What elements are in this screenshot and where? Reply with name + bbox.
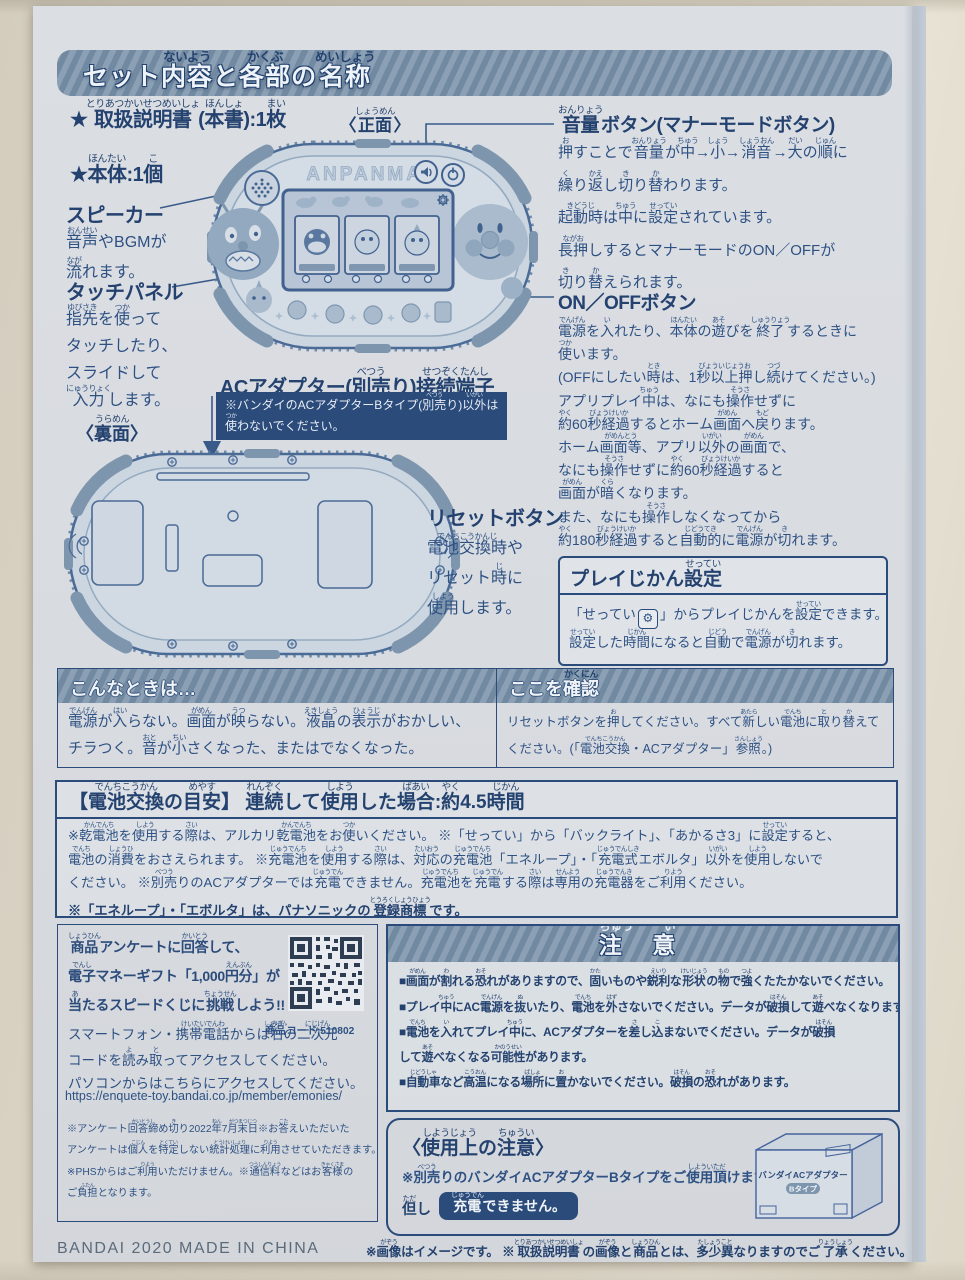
reset-button-desc: 電池交換時でんちこうかんじやリセット時じに使用しようします。 xyxy=(427,532,523,624)
survey-line5: コードを読よみ取とってアクセスしてください。 xyxy=(68,1047,258,1073)
survey-url: https://enquete-toy.bandai.co.jp/member/… xyxy=(65,1089,342,1103)
qr-code xyxy=(288,935,364,1011)
touch-screen xyxy=(283,190,453,290)
survey-note4: ご負担ふたんとなります。 xyxy=(67,1183,381,1204)
survey-note2: アンケートは個人こじんを特定とくていしない統計処理とうけいしょりに利用りようさせ… xyxy=(67,1140,381,1161)
power-button-icon xyxy=(442,164,464,186)
battery-cover-right xyxy=(318,501,372,588)
survey-line4: スマートフォン・携帯電話けいたいでんわからは右みぎの二次元にじげん xyxy=(68,1021,258,1047)
caution-item-3: ■電池でんちを入いれてプレイ中ちゅうに、ACアダプターを差さし込こまないでくださ… xyxy=(399,1020,887,1069)
usage-note-box: 〈使用上しようじょうの注意ちゅうい〉 ※別売べつうりのバンダイACアダプターBタ… xyxy=(386,1118,900,1236)
battery-guideline-title: 【電池交換でんちこうかんの目安めやす】 連続れんぞくして使用しようした場合ばあい… xyxy=(57,782,896,819)
trademark-note: ※「エネループ」・「エボルタ」は、パナソニックの登録商標とうろくしょうひょうです… xyxy=(57,897,896,926)
no-charge-badge: 充電じゅうでんできません。 xyxy=(439,1192,578,1220)
footer-disclaimer: ※画像がぞうはイメージです。 ※取扱説明書とりあつかいせつめいしょの画像がぞうと… xyxy=(366,1239,912,1260)
check-body: リセットボタンを押おしてください。すべて新あたらしい電池でんちに取とり替かえてく… xyxy=(497,703,893,767)
troubleshooting-table: こんなときは… 電源でんげんが入はいらない。画面がめんが映うつらない。液晶えきし… xyxy=(57,668,894,768)
power-button-label: ON／OFFボタン xyxy=(558,288,696,315)
adapter-box-name: バンダイACアダプター xyxy=(758,1170,847,1180)
footer-manufacturer: BANDAI 2020 MADE IN CHINA xyxy=(57,1240,319,1258)
device-back-illustration xyxy=(62,446,462,662)
adapter-box-type: Bタイプ xyxy=(789,1184,817,1194)
ac-adapter-box-illustration: バンダイACアダプター Bタイプ xyxy=(740,1126,892,1230)
caution-item-1: ■画面がめんが割われる恐おそれがありますので、固かたいものや鋭利えいりな形状けい… xyxy=(399,969,887,994)
battery-guideline-body: ※乾電池かんでんちを使用しようする際さいは、アルカリ乾電池かんでんちをお使つかい… xyxy=(57,819,896,897)
survey-line1: 商品しょうひんアンケートに回答かいとうして、 xyxy=(68,933,285,962)
speaker-label: スピーカー xyxy=(66,199,164,228)
caution-title: 注ちゅう 意い xyxy=(599,924,687,960)
playtime-setting-box: プレイじかん設定せってい 「せってい⚙」からプレイじかんを設定せっていできます。… xyxy=(558,556,888,666)
survey-note1: ※アンケート回答締かいとうしめ切きり2022年ねん7月末日がつまつじつ※お答こた… xyxy=(67,1119,381,1140)
photo-of-manual: セット内容ないようと各部かくぶの名称めいしょう ★取扱説明書とりあつかいせつめい… xyxy=(0,0,965,1280)
survey-notes: ※アンケート回答締かいとうしめ切きり2022年ねん7月末日がつまつじつ※お答こた… xyxy=(67,1119,381,1204)
trouble-header: こんなときは… xyxy=(58,669,496,703)
battery-guideline-box: 【電池交換でんちこうかんの目安めやす】 連続れんぞくして使用しようした場合ばあい… xyxy=(55,780,898,918)
touch-panel-label: タッチパネル xyxy=(66,276,183,305)
settings-gear-icon: ⚙ xyxy=(638,609,658,629)
power-button-desc: 電源でんげんを入いれたり、本体ほんたいの遊あそびを終了しゅうりょうするときに使つ… xyxy=(558,317,876,552)
survey-box: 商品しょうひんアンケートに回答かいとうして、 電子でんしマネーギフト「1,000… xyxy=(57,924,378,1222)
tadashi-label: 但ただし xyxy=(402,1194,431,1219)
survey-access-lines: スマートフォン・携帯電話けいたいでんわからは右みぎの二次元にじげん コードを読よ… xyxy=(68,1021,258,1096)
survey-headline: 商品しょうひんアンケートに回答かいとうして、 電子でんしマネーギフト「1,000… xyxy=(68,933,285,1020)
touch-panel-desc: 指先ゆびさきを使つかってタッチしたり、スライドして入力にゅうりょくします。 xyxy=(66,303,177,414)
contents-item-manual: ★取扱説明書とりあつかいせつめいしょ(本書ほんしょ):1枚まい xyxy=(70,99,286,132)
volume-button-desc: 押おすことで音量おんりょうが中ちゅう→小しょう→消音しょうおん→大だいの順じゅん… xyxy=(558,136,848,300)
speaker-icon xyxy=(245,171,279,205)
playtime-line2: 設定せっていした時間じかんになると自動じどうで電源でんげんが切きれます。 xyxy=(569,629,877,656)
volume-button-label: 音量おんりょうボタン(マナーモードボタン) xyxy=(558,105,835,137)
caution-item-4: ■自動車じどうしゃなど高温こうおんになる場所ばしょに置おかないでください。破損は… xyxy=(399,1070,887,1095)
page-title: セット内容ないようと各部かくぶの名称めいしょう xyxy=(83,50,375,93)
caution-item-2: ■プレイ中ちゅうにAC電源でんげんを抜ぬいたり、電池でんちを外はずさないでくださ… xyxy=(399,995,887,1020)
front-view-caption: 〈正面しょうめん〉 xyxy=(325,106,425,136)
usage-note-title: 〈使用上しようじょうの注意ちゅうい〉 xyxy=(402,1128,554,1160)
playtime-line1: 「せってい⚙」からプレイじかんを設定せっていできます。 xyxy=(569,601,877,629)
survey-line3: 当あたるスピードくじに挑戦ちょうせんしよう!! xyxy=(68,991,285,1020)
usage-note-badge-row: 但ただし 充電じゅうでんできません。 xyxy=(402,1192,578,1220)
battery-cover-left xyxy=(92,501,143,585)
trouble-body: 電源でんげんが入はいらない。画面がめんが映うつらない。液晶えきしょうの表示ひょう… xyxy=(58,703,496,767)
app-cards xyxy=(295,216,439,283)
playtime-setting-title: プレイじかん設定せってい xyxy=(560,558,886,595)
survey-note3: ※PHSからはご利用りよういただけません。※通信料つうしんりょうなどはお客様きゃ… xyxy=(67,1162,381,1183)
device-front-illustration: ANPANMAN xyxy=(205,136,540,356)
check-header: ここを確認かくにん xyxy=(497,669,893,703)
caution-box: 注ちゅう 意い ■画面がめんが割われる恐おそれがありますので、固かたいものや鋭利… xyxy=(386,924,900,1112)
volume-button-icon xyxy=(415,161,437,183)
back-view-caption: 〈裏面うらめん〉 xyxy=(76,414,148,446)
survey-line2: 電子でんしマネーギフト「1,000円分えんぶん」が xyxy=(68,962,285,991)
playtime-line1-post: 」からプレイじかんを設定せっていできます。 xyxy=(660,607,888,622)
contents-item-body: ★本体ほんたい:1個こ xyxy=(70,154,163,187)
caution-header-bar: 注ちゅう 意い xyxy=(388,926,898,962)
reset-button-label: リセットボタン xyxy=(427,502,564,531)
usage-note-line: ※別売べつうりのバンダイACアダプターBタイプをご使用頂しよういただけます。 xyxy=(402,1164,779,1186)
playtime-line1-pre: 「せってい xyxy=(569,607,636,622)
ac-adapter-warning-box: ※バンダイのACアダプターBタイプ(別売べつうり)以外いがいは使つかわないでくだ… xyxy=(216,392,507,440)
section-title-bar: セット内容ないようと各部かくぶの名称めいしょう xyxy=(57,50,892,96)
